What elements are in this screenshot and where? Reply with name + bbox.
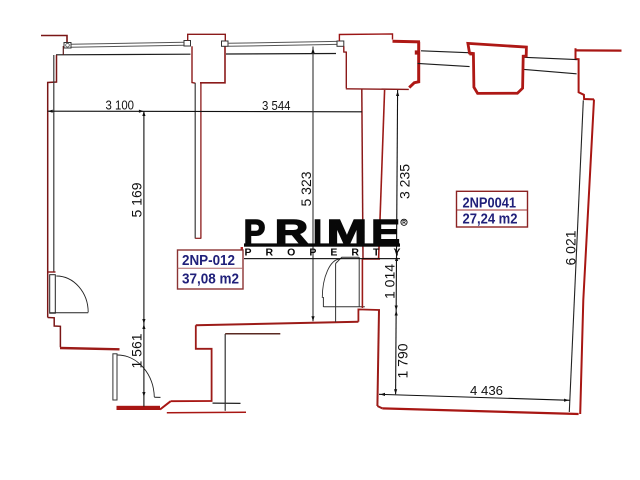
svg-text:6 021: 6 021	[563, 230, 579, 265]
svg-text:2NP-012: 2NP-012	[182, 252, 235, 269]
svg-text:3 235: 3 235	[397, 164, 413, 199]
svg-text:2NP0041: 2NP0041	[463, 194, 517, 211]
svg-text:1 790: 1 790	[395, 343, 411, 378]
svg-text:R: R	[402, 220, 406, 226]
svg-text:3 544: 3 544	[262, 98, 291, 113]
svg-text:27,24 m2: 27,24 m2	[463, 211, 518, 228]
svg-text:1 561: 1 561	[129, 333, 145, 368]
svg-text:4 436: 4 436	[470, 383, 503, 398]
svg-text:3 100: 3 100	[106, 98, 135, 113]
svg-text:5 323: 5 323	[298, 171, 314, 206]
svg-text:37,08 m2: 37,08 m2	[182, 270, 239, 287]
svg-text:5 169: 5 169	[129, 182, 145, 217]
svg-text:1 014: 1 014	[382, 264, 398, 299]
